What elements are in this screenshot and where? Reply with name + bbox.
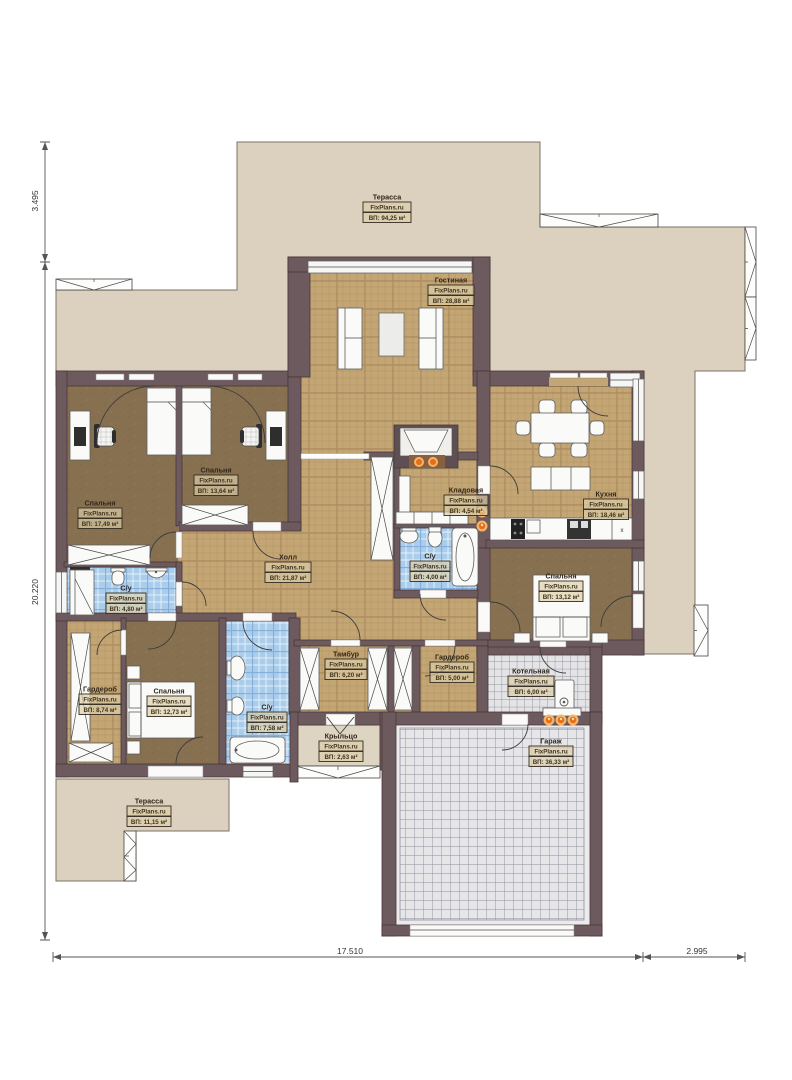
- svg-text:ВП: 5,00 м²: ВП: 5,00 м²: [435, 675, 468, 682]
- svg-text:Спальня: Спальня: [153, 687, 184, 696]
- svg-text:FixPlans.ru: FixPlans.ru: [544, 584, 578, 591]
- svg-text:2.995: 2.995: [686, 946, 708, 956]
- svg-text:Терасса: Терасса: [373, 193, 402, 202]
- svg-text:Спальня: Спальня: [200, 466, 231, 475]
- svg-text:FixPlans.ru: FixPlans.ru: [589, 502, 623, 509]
- svg-text:FixPlans.ru: FixPlans.ru: [199, 478, 233, 485]
- svg-text:ВП: 18,46 м²: ВП: 18,46 м²: [588, 512, 625, 519]
- svg-text:FixPlans.ru: FixPlans.ru: [271, 565, 305, 572]
- svg-text:ВП: 36,33 м²: ВП: 36,33 м²: [533, 759, 570, 766]
- svg-text:С/у: С/у: [424, 552, 435, 561]
- svg-text:ВП: 21,87 м²: ВП: 21,87 м²: [270, 575, 307, 582]
- svg-text:Гардероб: Гардероб: [83, 685, 118, 694]
- svg-text:Котельная: Котельная: [512, 667, 550, 676]
- svg-text:FixPlans.ru: FixPlans.ru: [109, 596, 143, 603]
- svg-text:17.510: 17.510: [337, 946, 363, 956]
- svg-text:FixPlans.ru: FixPlans.ru: [324, 744, 358, 751]
- svg-text:ВП: 2,63 м²: ВП: 2,63 м²: [324, 754, 357, 761]
- svg-text:С/у: С/у: [120, 584, 131, 593]
- svg-text:FixPlans.ru: FixPlans.ru: [534, 749, 568, 756]
- svg-text:FixPlans.ru: FixPlans.ru: [370, 205, 404, 212]
- svg-text:ВП: 6,20 м²: ВП: 6,20 м²: [329, 672, 362, 679]
- svg-text:Спальня: Спальня: [545, 572, 576, 581]
- svg-text:Кладовая: Кладовая: [449, 486, 483, 495]
- svg-text:20.220: 20.220: [30, 579, 40, 605]
- svg-text:ВП: 17,49 м²: ВП: 17,49 м²: [82, 521, 119, 528]
- svg-text:ВП: 4,00 м²: ВП: 4,00 м²: [413, 574, 446, 581]
- svg-text:ВП: 4,54 м²: ВП: 4,54 м²: [449, 508, 482, 515]
- svg-text:ВП: 28,88 м²: ВП: 28,88 м²: [433, 298, 470, 305]
- svg-text:FixPlans.ru: FixPlans.ru: [329, 662, 363, 669]
- svg-text:x: x: [621, 528, 624, 534]
- svg-text:Гостиная: Гостиная: [435, 276, 467, 285]
- svg-text:Крыльцо: Крыльцо: [325, 732, 358, 741]
- svg-text:ВП: 4,80 м²: ВП: 4,80 м²: [109, 606, 142, 613]
- svg-text:FixPlans.ru: FixPlans.ru: [250, 715, 284, 722]
- svg-text:FixPlans.ru: FixPlans.ru: [514, 679, 548, 686]
- svg-text:ВП: 13,12 м²: ВП: 13,12 м²: [543, 594, 580, 601]
- svg-text:ВП: 13,64 м²: ВП: 13,64 м²: [198, 488, 235, 495]
- svg-text:FixPlans.ru: FixPlans.ru: [413, 564, 447, 571]
- svg-text:FixPlans.ru: FixPlans.ru: [449, 498, 483, 505]
- svg-text:ВП: 11,15 м²: ВП: 11,15 м²: [131, 819, 167, 826]
- svg-text:Спальня: Спальня: [84, 499, 115, 508]
- svg-text:ВП: 7,58 м²: ВП: 7,58 м²: [250, 725, 283, 732]
- svg-text:Гараж: Гараж: [540, 737, 562, 746]
- svg-text:FixPlans.ru: FixPlans.ru: [152, 699, 186, 706]
- svg-text:Гардероб: Гардероб: [435, 653, 470, 662]
- svg-text:С/у: С/у: [261, 703, 272, 712]
- svg-text:ВП: 94,25 м²: ВП: 94,25 м²: [369, 215, 406, 222]
- svg-text:Тамбур: Тамбур: [333, 650, 360, 659]
- svg-text:3.495: 3.495: [30, 190, 40, 212]
- svg-text:ВП: 6,00 м²: ВП: 6,00 м²: [514, 689, 547, 696]
- svg-text:Терасса: Терасса: [135, 797, 164, 806]
- svg-text:FixPlans.ru: FixPlans.ru: [435, 665, 469, 672]
- svg-text:FixPlans.ru: FixPlans.ru: [83, 697, 117, 704]
- svg-text:FixPlans.ru: FixPlans.ru: [132, 809, 166, 816]
- svg-text:ВП: 8,74 м²: ВП: 8,74 м²: [83, 707, 116, 714]
- svg-text:FixPlans.ru: FixPlans.ru: [434, 288, 468, 295]
- svg-text:Кухня: Кухня: [595, 490, 616, 499]
- svg-text:ВП: 12,73 м²: ВП: 12,73 м²: [151, 709, 188, 716]
- svg-text:FixPlans.ru: FixPlans.ru: [83, 511, 117, 518]
- svg-text:Холл: Холл: [279, 553, 297, 562]
